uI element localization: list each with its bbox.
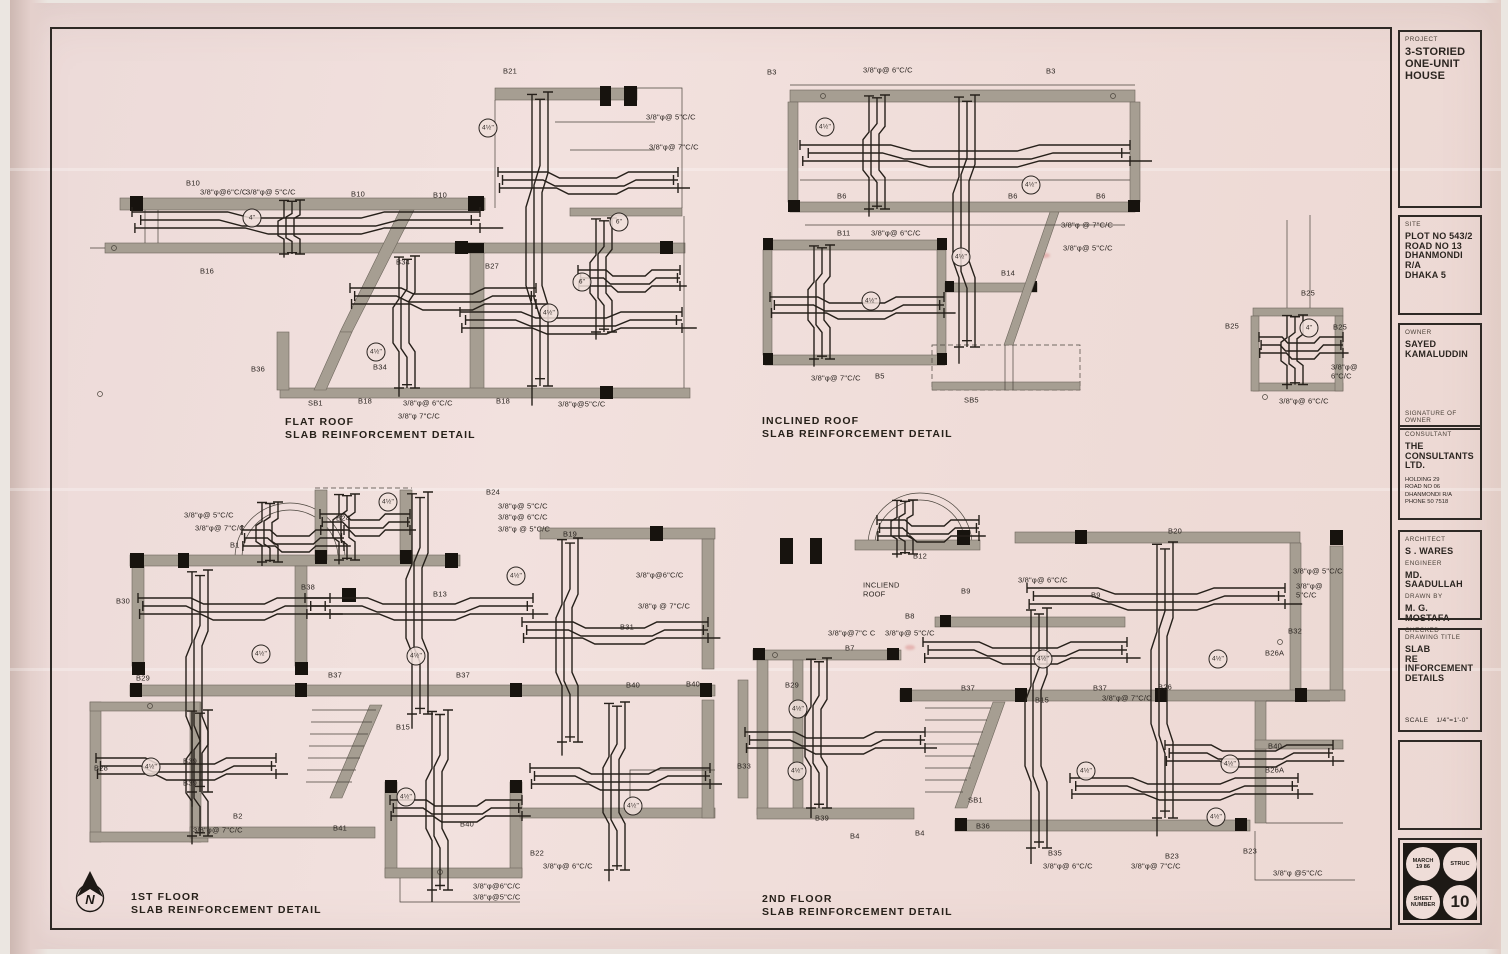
rebar-annotation: 3/8"φ@ 5"C/C — [1063, 245, 1113, 254]
rebar-annotation: 3/8"φ@ 7"C/C — [193, 827, 243, 836]
rebar-annotation: B14 — [1001, 270, 1015, 279]
rebar-annotation: B23 — [1243, 848, 1257, 857]
project-line: HOUSE — [1405, 71, 1475, 83]
rebar-annotation: B23 — [1165, 853, 1179, 862]
scale-row: SCALE 1/4"=1'-0" — [1405, 717, 1468, 724]
north-arrow: N — [66, 870, 114, 916]
rebar-annotation: B40 — [626, 682, 640, 691]
address-line: HOLDING 29 — [1405, 477, 1475, 484]
rebar-annotation: B18 — [496, 398, 510, 407]
north-letter: N — [85, 892, 95, 907]
drawn-by-name: M. G. MOSTAFA — [1405, 604, 1475, 623]
rebar-annotation: B24 — [486, 489, 500, 498]
rebar-annotation: B20 — [1168, 528, 1182, 537]
rebar-annotation: B33 — [737, 763, 751, 772]
rebar-annotation: 3/8"φ @ 7"C/C — [638, 603, 690, 612]
rebar-annotation: 3/8"φ@5"C/C — [473, 894, 521, 903]
rebar-annotation: 3/8"φ@ 6"C/C — [1043, 863, 1093, 872]
consultant-line: LTD. — [1405, 461, 1475, 471]
rebar-annotation: 3/8"φ@ 6"C/C — [403, 400, 453, 409]
rebar-annotation: B25 — [1301, 290, 1315, 299]
architect-label: ARCHITECT — [1405, 536, 1475, 543]
drawing-title-line: FLAT ROOF — [285, 416, 476, 429]
stamp-number-circle: 10 — [1443, 885, 1477, 919]
rebar-annotation: B30 — [116, 598, 130, 607]
rebar-annotation: 3/8"φ@ 6"C/C — [863, 67, 913, 76]
rebar-annotation: INCLIEND ROOF — [863, 581, 900, 598]
signature-label: SIGNATURE OF OWNER — [1405, 410, 1480, 424]
rebar-annotation: B6 — [1096, 193, 1106, 202]
rebar-annotation: B25 — [1333, 324, 1347, 333]
slab-thickness-marker: 4½" — [789, 700, 808, 719]
rebar-annotation: 3/8"φ@ 6"C/C — [498, 514, 548, 523]
rebar-annotation: B27 — [485, 263, 499, 272]
rebar-annotation: B10 — [186, 180, 200, 189]
project-label: PROJECT — [1405, 36, 1475, 43]
title-block: PROJECT 3-STORIED ONE-UNIT HOUSE SITE PL… — [1398, 27, 1482, 930]
rebar-annotation: B1 — [230, 542, 240, 551]
slab-thickness-marker: 4½" — [479, 119, 498, 138]
rebar-annotation: B37 — [456, 672, 470, 681]
rebar-annotation: 3/8"φ@ 7"C/C — [811, 375, 861, 384]
rebar-annotation: 3/8"φ@ 6"C/C — [1279, 398, 1329, 407]
rebar-annotation: B39 — [815, 815, 829, 824]
slab-thickness-marker: 4½" — [407, 647, 426, 666]
stamp-type-circle: STRUC — [1443, 847, 1477, 881]
engineer-label: ENGINEER — [1405, 560, 1475, 567]
rebar-annotation: SB5 — [964, 397, 979, 406]
slab-thickness-marker: 4½" — [1077, 762, 1096, 781]
rebar-annotation: B40 — [460, 821, 474, 830]
rebar-annotation: B35 — [1048, 850, 1062, 859]
rebar-annotation: 3/8"φ@ 5"C/C — [498, 503, 548, 512]
drawing-subtitle-line: SLAB REINFORCEMENT DETAIL — [762, 428, 953, 441]
rebar-annotation: 3/8"φ@ 6"C/C — [1331, 363, 1365, 380]
rebar-annotation: 3/8"φ @ 7"C/C — [1061, 222, 1113, 231]
rebar-annotation: B5 — [875, 373, 885, 382]
rebar-annotation: B12 — [913, 553, 927, 562]
address-line: DHANMONDI R/A — [1405, 492, 1475, 499]
b25-slab-detail: B25B25B254"3/8"φ@ 6"C/C3/8"φ@ 6"C/C — [1215, 215, 1365, 415]
rebar-annotation: B21 — [503, 68, 517, 77]
slab-thickness-marker: 4½" — [1209, 650, 1228, 669]
slab-thickness-marker: 4½" — [1207, 808, 1226, 827]
site-line: DHANMONDI R/A — [1405, 251, 1475, 270]
rebar-annotation: B39 — [183, 758, 197, 767]
first-floor-geometry — [90, 470, 715, 915]
rebar-annotation: 3/8"φ@ 5"C/C — [646, 114, 696, 123]
rebar-annotation: B10 — [433, 192, 447, 201]
sheet-number: 10 — [1451, 892, 1470, 912]
stamp-date-circle: MARCH 19 86 — [1406, 847, 1440, 881]
paper-fold-edge — [10, 0, 48, 954]
rebar-annotation: 3/8"φ @ 5"C/C — [498, 526, 550, 535]
slab-thickness-marker: 6" — [610, 213, 629, 232]
team-panel: ARCHITECT S . WARES ENGINEER MD. SAADULL… — [1398, 530, 1482, 620]
flat-roof-geometry — [100, 60, 700, 440]
scanned-drawing-sheet: B213/8"φ@ 5"C/C3/8"φ@ 7"C/CB103/8"φ@6"C/… — [0, 0, 1508, 954]
rebar-annotation: B37 — [961, 685, 975, 694]
stamp-grid: MARCH 19 86 STRUC SHEET NUMBER 10 — [1403, 843, 1477, 920]
drawing-title-line: 2ND FLOOR — [762, 893, 953, 906]
stamp-type: STRUC — [1450, 861, 1469, 867]
rebar-annotation: B4 — [915, 830, 925, 839]
stamp-sheet-circle: SHEET NUMBER — [1406, 885, 1440, 919]
rebar-annotation: B36 — [976, 823, 990, 832]
drawing-title-label: DRAWING TITLE — [1405, 634, 1475, 641]
slab-thickness-marker: 4½" — [862, 292, 881, 311]
rebar-annotation: 3/8"φ@ 7"C/C — [1102, 695, 1152, 704]
rebar-annotation: B6 — [1008, 193, 1018, 202]
drawing-title-line: DETAILS — [1405, 674, 1475, 684]
drawing-title-line: INCLINED ROOF — [762, 415, 953, 428]
stamp-panel: MARCH 19 86 STRUC SHEET NUMBER 10 — [1398, 838, 1482, 925]
rebar-annotation: B22 — [530, 850, 544, 859]
slab-thickness-marker: 4½" — [379, 493, 398, 512]
rebar-annotation: B28 — [94, 765, 108, 774]
rebar-annotation: 3/8"φ@ 5"C/C — [246, 189, 296, 198]
rebar-annotation: B25 — [1225, 323, 1239, 332]
slab-thickness-marker: 4½" — [1034, 650, 1053, 669]
slab-thickness-marker: 4½" — [624, 797, 643, 816]
engineer-name: MD. SAADULLAH — [1405, 571, 1475, 590]
rebar-annotation: B29 — [136, 675, 150, 684]
rebar-annotation: 3/8"φ@ 6"C/C — [543, 863, 593, 872]
rebar-annotation: B24 — [336, 515, 350, 524]
architect-name: S . WARES — [1405, 547, 1475, 557]
slab-thickness-marker: 4" — [243, 209, 262, 228]
site-label: SITE — [1405, 221, 1475, 228]
address-line: PHONE 50 7518 — [1405, 499, 1475, 506]
owner-label: OWNER — [1405, 329, 1475, 336]
consultant-panel: CONSULTANT THE CONSULTANTS LTD. HOLDING … — [1398, 425, 1482, 520]
rebar-annotation: B37 — [1093, 685, 1107, 694]
rebar-annotation: 3/8"φ@ 5"C/C — [885, 630, 935, 639]
drawing-subtitle-line: SLAB REINFORCEMENT DETAIL — [285, 429, 476, 442]
owner-line: KAMALUDDIN — [1405, 350, 1475, 360]
rebar-annotation: B3 — [1046, 68, 1056, 77]
consultant-address: HOLDING 29 ROAD NO 06 DHANMONDI R/A PHON… — [1405, 477, 1475, 506]
rebar-annotation: 3/8"φ@6"C/C — [200, 189, 248, 198]
rebar-annotation: 3/8"φ@ 5"C/C — [1293, 568, 1343, 577]
rebar-annotation: B36 — [251, 366, 265, 375]
rebar-annotation: B26A — [1265, 650, 1284, 659]
slab-thickness-marker: 4½" — [1221, 755, 1240, 774]
first-floor-title: 1ST FLOOR SLAB REINFORCEMENT DETAIL — [131, 891, 322, 917]
rebar-annotation: B18 — [358, 398, 372, 407]
drawing-subtitle-line: SLAB REINFORCEMENT DETAIL — [131, 904, 322, 917]
project-line: ONE-UNIT — [1405, 59, 1475, 71]
consultant-label: CONSULTANT — [1405, 431, 1475, 438]
slab-thickness-marker: 6" — [573, 273, 592, 292]
b25-detail-geometry — [1215, 215, 1365, 415]
drawing-title-line: 1ST FLOOR — [131, 891, 322, 904]
slab-thickness-marker: 4½" — [397, 788, 416, 807]
rebar-annotation: 3/8"φ@6"C/C — [636, 572, 684, 581]
rebar-annotation: 3/8"φ@6"C/C — [473, 883, 521, 892]
rebar-annotation: 3/8"φ @5"C/C — [1273, 870, 1323, 879]
rebar-annotation: 3/8"φ@ 5"C/C — [184, 512, 234, 521]
site-line: DHAKA 5 — [1405, 271, 1475, 281]
rebar-annotation: B34 — [373, 364, 387, 373]
rebar-annotation: 3/8"φ@ 7"C/C — [649, 144, 699, 153]
rebar-annotation: B37 — [328, 672, 342, 681]
slab-thickness-marker: 4½" — [816, 118, 835, 137]
rebar-annotation: 3/8"φ@ 7"C/C — [195, 525, 245, 534]
rebar-annotation: B32 — [1288, 628, 1302, 637]
paper-torn-edge — [1485, 0, 1501, 954]
flat-roof-plan: B213/8"φ@ 5"C/C3/8"φ@ 7"C/CB103/8"φ@6"C/… — [100, 60, 700, 440]
slab-thickness-marker: 4½" — [540, 304, 559, 323]
slab-thickness-marker: 4½" — [252, 645, 271, 664]
north-arrow-icon: N — [66, 870, 114, 916]
rebar-annotation: B41 — [333, 825, 347, 834]
inclined-roof-geometry — [745, 55, 1165, 420]
rebar-annotation: B34 — [396, 259, 410, 268]
stamp-sheet-line: NUMBER — [1411, 902, 1436, 908]
rebar-annotation: B26 — [1158, 684, 1172, 693]
rebar-annotation: B6 — [837, 193, 847, 202]
drawing-title-panel: DRAWING TITLE SLAB RE INFORCEMENT DETAIL… — [1398, 628, 1482, 732]
inclined-roof-title: INCLINED ROOF SLAB REINFORCEMENT DETAIL — [762, 415, 953, 441]
rebar-annotation: B39 — [183, 780, 197, 789]
rebar-annotation: B10 — [351, 191, 365, 200]
owner-panel: OWNER SAYED KAMALUDDIN SIGNATURE OF OWNE… — [1398, 323, 1482, 430]
drawn-by-label: DRAWN BY — [1405, 593, 1475, 600]
slab-thickness-marker: 4½" — [788, 762, 807, 781]
site-panel: SITE PLOT NO 543/2 ROAD NO 13 DHANMONDI … — [1398, 215, 1482, 315]
rebar-annotation: B13 — [433, 591, 447, 600]
drawing-subtitle-line: SLAB REINFORCEMENT DETAIL — [762, 906, 953, 919]
slab-thickness-marker: 4" — [1300, 319, 1319, 338]
empty-panel — [1398, 740, 1482, 830]
slab-thickness-marker: 4½" — [367, 343, 386, 362]
second-floor-plan: B12B203/8"φ@ 5"C/C3/8"φ@ 5"C/CINCLIEND R… — [735, 490, 1345, 915]
rebar-annotation: B4 — [850, 833, 860, 842]
scale-value: 1/4"=1'-0" — [1436, 717, 1468, 724]
rebar-annotation: B38 — [301, 584, 315, 593]
rebar-annotation: 3/8"φ@ 7"C/C — [1131, 863, 1181, 872]
rebar-annotation: B31 — [620, 624, 634, 633]
address-line: ROAD NO 06 — [1405, 484, 1475, 491]
rebar-annotation: B29 — [785, 682, 799, 691]
rebar-annotation: B2 — [233, 813, 243, 822]
rebar-annotation: B11 — [837, 230, 850, 239]
first-floor-plan: B243/8"φ@ 5"C/C3/8"φ@ 6"C/C3/8"φ @ 5"C/C… — [90, 470, 715, 915]
rebar-annotation: B7 — [845, 645, 855, 654]
rebar-annotation: B40 — [686, 681, 700, 690]
rebar-annotation: 3/8"φ@ 5"C/C — [1296, 582, 1345, 599]
rebar-annotation: 3/8"φ@5"C/C — [558, 401, 606, 410]
rebar-annotation: B15 — [396, 724, 410, 733]
project-panel: PROJECT 3-STORIED ONE-UNIT HOUSE — [1398, 30, 1482, 208]
second-floor-title: 2ND FLOOR SLAB REINFORCEMENT DETAIL — [762, 893, 953, 919]
rebar-annotation: B8 — [905, 613, 915, 622]
scale-label: SCALE — [1405, 717, 1428, 724]
rebar-annotation: B19 — [563, 531, 577, 540]
slab-thickness-marker: 4½" — [507, 567, 526, 586]
drawing-title-line: RE INFORCEMENT — [1405, 655, 1475, 674]
rebar-annotation: 3/8"φ@ 6"C/C — [871, 230, 921, 239]
slab-thickness-marker: 4½" — [142, 758, 161, 777]
rebar-annotation: B3 — [767, 69, 777, 78]
rebar-annotation: 3/8"φ@7"C C — [828, 630, 876, 639]
slab-thickness-marker: 4½" — [1022, 176, 1041, 195]
rebar-annotation: B9 — [961, 588, 971, 597]
flat-roof-title: FLAT ROOF SLAB REINFORCEMENT DETAIL — [285, 416, 476, 442]
stamp-date-line: 19 86 — [1416, 864, 1430, 870]
rebar-annotation: B9 — [1091, 592, 1101, 601]
rebar-annotation: SB1 — [308, 400, 323, 409]
rebar-annotation: B26A — [1265, 767, 1284, 776]
rebar-annotation: SB1 — [968, 797, 983, 806]
rebar-annotation: B40 — [1268, 743, 1282, 752]
inclined-roof-plan: B33/8"φ@ 6"C/CB34½"4½"B6B6B63/8"φ @ 7"C/… — [745, 55, 1165, 420]
rebar-annotation: B15 — [1035, 697, 1049, 706]
rebar-annotation: B16 — [200, 268, 214, 277]
rebar-annotation: 3/8"φ@ 6"C/C — [1018, 577, 1068, 586]
slab-thickness-marker: 4½" — [952, 248, 971, 267]
